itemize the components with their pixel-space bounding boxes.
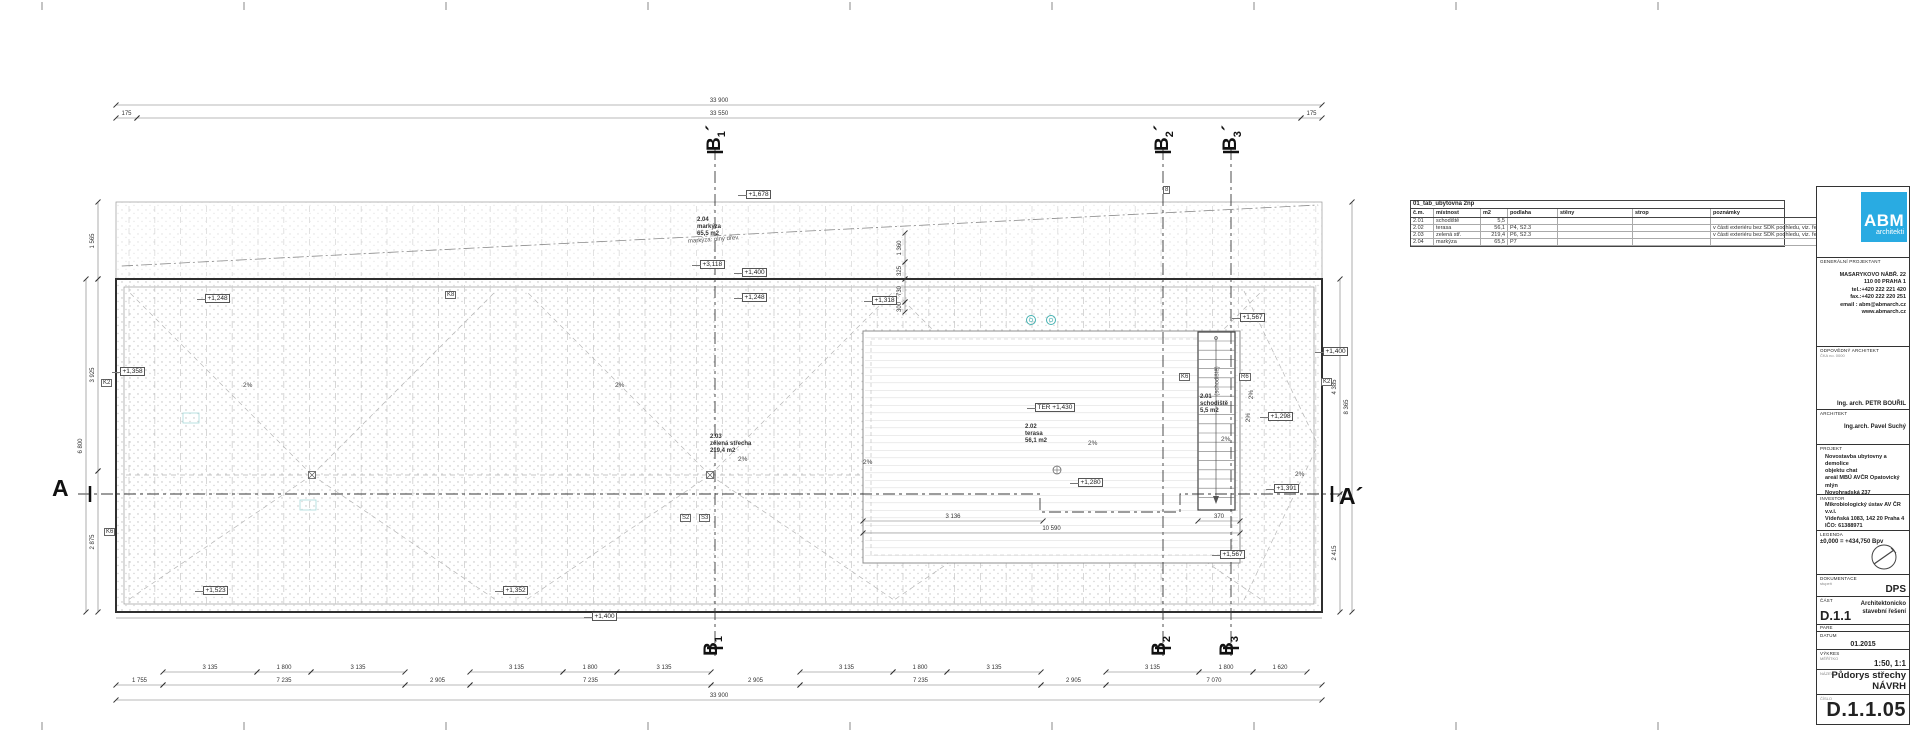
table-cell [1558,232,1633,239]
logo-section: ABM architekti [1817,187,1909,258]
table-cell [1633,225,1711,232]
room-table: 01_tab_ubytovna 2np č.m.místnostm2podlah… [1410,200,1785,247]
table-cell [1633,232,1711,239]
table-cell [1711,218,1821,225]
room-table-col-5: strop [1633,209,1711,218]
part-name: Architektonicko stavební řešení [1861,601,1906,616]
legend-label: LEGENDA [1820,532,1906,537]
table-cell [1558,225,1633,232]
documentation-stage: DPS [1885,584,1906,595]
plan-layer-canopy [116,202,1322,279]
room-table-col-2: m2 [1481,209,1508,218]
legend-section: LEGENDA ±0,000 = +434,750 Bpv [1817,531,1909,575]
table-cell: zelená stř. [1434,232,1481,239]
table-cell: 5,5 [1481,218,1508,225]
date-value: 01.2015 [1817,641,1909,648]
pare-label: PARE [1820,625,1906,630]
room-table-col-6: poznámky [1711,209,1821,218]
table-cell [1633,218,1711,225]
table-cell: 2.03 [1411,232,1434,239]
table-row: 2.01schodiště5,5 [1411,218,1820,225]
table-cell [1508,218,1558,225]
drawing-number: D.1.1.05 [1826,699,1906,722]
architect-name: Ing.arch. Pavel Suchý [1844,424,1906,430]
table-cell [1558,239,1633,246]
table-cell: 56,1 [1481,225,1508,232]
documentation-section: DOKUMENTACE stupeň DPS [1817,575,1909,597]
investor-section: INVESTOR Mikrobiologický ústav AV ČR v.v… [1817,495,1909,531]
name-section: NÁZEV Půdorys střechy NÁVRH [1817,670,1909,695]
table-cell: schodiště [1434,218,1481,225]
plan-layer-terrace [863,331,1240,563]
roof-plan-drawing [0,0,1920,732]
architect-section: ARCHITEKT Ing.arch. Pavel Suchý [1817,410,1909,445]
table-cell: 2.01 [1411,218,1434,225]
table-row: 2.04markýza65,5P7 [1411,239,1820,246]
responsible-architect-section: ODPOVĚDNÝ ARCHITEKT ČKA no. 0000 Ing. ar… [1817,347,1909,410]
table-cell: v části exteriéru bez SDK podhledu, viz.… [1711,225,1821,232]
room-table-col-1: místnost [1434,209,1481,218]
logo-text: ABM [1864,212,1904,229]
table-cell: 2.02 [1411,225,1434,232]
table-cell: 219,4 [1481,232,1508,239]
table-cell: P6, S2.3 [1508,232,1558,239]
table-cell: v části exteriéru bez SDK podhledu, viz.… [1711,232,1821,239]
drawing-sheet: B1´B2´B3´B1B2B3AA´33 90017533 5501753 13… [0,0,1920,732]
part-section: ČÁST D.1.1 Architektonicko stavební řeše… [1817,597,1909,625]
table-cell: P4, S2.3 [1508,225,1558,232]
room-table-col-0: č.m. [1411,209,1434,218]
general-designer-label: GENERÁLNÍ PROJEKTANT [1820,259,1906,264]
room-table-col-3: podlaha [1508,209,1558,218]
table-cell: terasa [1434,225,1481,232]
project-label: PROJEKT [1820,446,1906,451]
table-cell: P7 [1508,239,1558,246]
project-description: Novostavba ubytovny a demolice objektu c… [1825,454,1909,495]
table-cell [1711,239,1821,246]
title-block: ABM architekti GENERÁLNÍ PROJEKTANT MASA… [1816,186,1910,725]
drawing-name: Půdorys střechy NÁVRH [1832,671,1906,693]
responsible-architect-name: Ing. arch. PETR BOUŘIL [1837,401,1906,407]
room-table-title: 01_tab_ubytovna 2np [1411,201,1784,209]
table-row: 2.03zelená stř.219,4P6, S2.3v části exte… [1411,232,1820,239]
responsible-architect-note: ČKA no. 0000 [1820,353,1906,358]
table-cell: 2.04 [1411,239,1434,246]
table-cell: markýza [1434,239,1481,246]
table-cell [1633,239,1711,246]
project-section: PROJEKT Novostavba ubytovny a demolice o… [1817,445,1909,495]
north-arrow-icon [1869,542,1899,572]
logo-subtext: architekti [1864,229,1904,236]
room-table-col-4: stěny [1558,209,1633,218]
architect-label: ARCHITEKT [1820,411,1906,416]
investor-label: INVESTOR [1820,496,1906,501]
general-designer-section: GENERÁLNÍ PROJEKTANT MASARYKOVO NÁBŘ. 22… [1817,258,1909,347]
table-cell: 65,5 [1481,239,1508,246]
date-section: DATUM 01.2015 [1817,632,1909,650]
date-label: DATUM [1820,633,1906,638]
table-cell [1558,218,1633,225]
designer-address: MASARYKOVO NÁBŘ. 22 110 00 PRAHA 1 tel.:… [1840,272,1906,317]
table-row: 2.02terasa56,1P4, S2.3v části exteriéru … [1411,225,1820,232]
scale-section: VÝKRES MĚŘÍTKO 1:50, 1:1 [1817,650,1909,670]
part-code: D.1.1 [1820,608,1851,623]
scale-value: 1:50, 1:1 [1874,659,1906,668]
plan-layer-stair [1198,332,1235,510]
room-table-header: č.m.místnostm2podlahastěnystroppoznámky [1411,209,1820,218]
number-section: ČÍSLO D.1.1.05 [1817,695,1909,724]
investor-description: Mikrobiologický ústav AV ČR v.v.i. Vídeň… [1825,502,1909,531]
pare-section: PARE [1817,625,1909,632]
abm-architekti-logo: ABM architekti [1861,192,1907,242]
